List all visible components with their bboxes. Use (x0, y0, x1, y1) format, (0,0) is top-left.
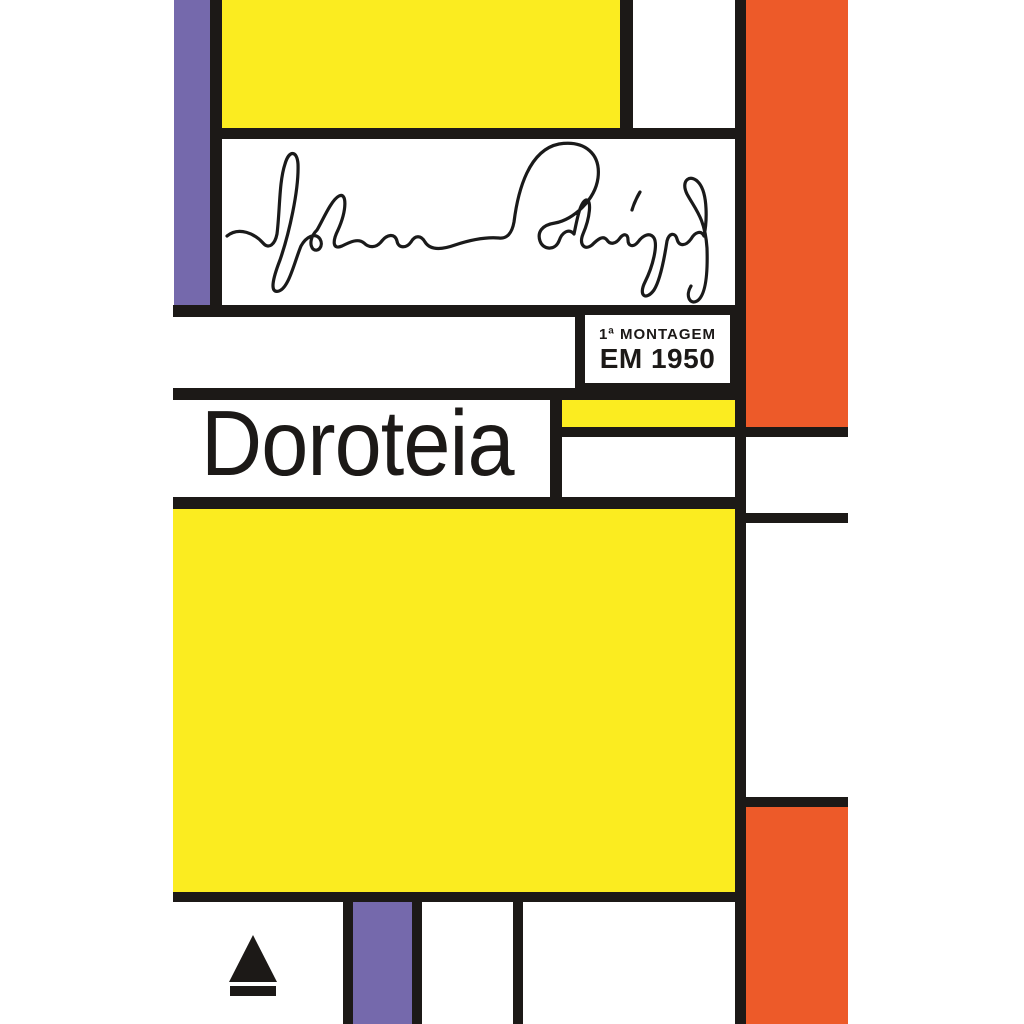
purple-bar-top-left (174, 0, 210, 305)
line-under-orange-top (746, 427, 848, 437)
divider-vertical-top-mid (620, 0, 633, 128)
purple-bar-bottom (353, 902, 412, 1024)
signature-icon (225, 138, 730, 306)
author-signature (225, 138, 730, 306)
spine-vertical-line (735, 0, 746, 1024)
white-block-top-right (633, 0, 735, 128)
yellow-block-top (222, 0, 620, 128)
edition-badge-line1: 1ª MONTAGEM (599, 325, 716, 344)
orange-block-bottom-right (746, 807, 848, 1024)
line-left-of-purple-bottom (343, 902, 353, 1024)
line-under-yellow-strip (550, 427, 746, 437)
line-right-of-purple-bottom (412, 902, 422, 1024)
line-under-main-yellow (173, 892, 735, 902)
line-under-title-row (173, 497, 746, 509)
divider-right-of-title (550, 393, 562, 509)
edition-badge-line2: EM 1950 (600, 344, 716, 374)
line-above-orange-bottom (746, 797, 848, 807)
line-right-upper (746, 513, 848, 523)
divider-vertical-top-left (210, 0, 222, 317)
triangle-icon (226, 933, 280, 997)
white-block-mid-right (562, 437, 735, 497)
yellow-block-main (173, 509, 735, 892)
yellow-strip-mid-right (562, 400, 735, 427)
book-title: Doroteia (201, 395, 514, 491)
publisher-logo (226, 933, 280, 997)
orange-block-top-right (746, 0, 848, 427)
edition-badge: 1ª MONTAGEM EM 1950 (575, 305, 740, 393)
line-bottom-center (513, 902, 523, 1024)
book-cover: 1ª MONTAGEM EM 1950 Doroteia (0, 0, 1024, 1024)
